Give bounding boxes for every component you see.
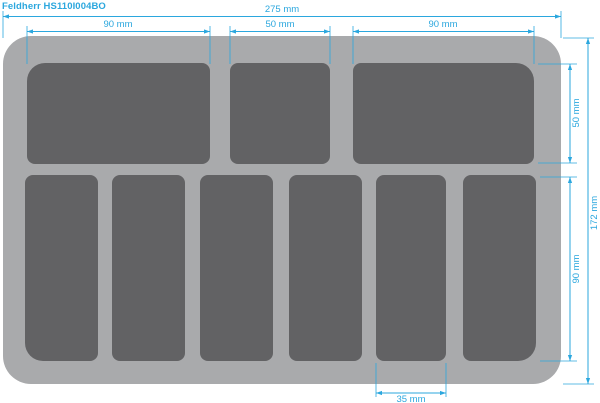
dim-top-total-label: 275 mm [265,4,299,15]
dim-top-left-label: 90 mm [103,19,132,30]
compartment-top-3 [353,63,534,164]
dim-right-total-label: 172 mm [589,196,600,230]
compartment-bottom-1 [25,175,98,361]
compartment-bottom-5 [376,175,446,361]
compartment-bottom-2 [112,175,185,361]
compartment-bottom-3 [200,175,273,361]
dim-right-top-label: 50 mm [571,98,582,127]
foam-tray [3,36,561,384]
compartment-top-1 [27,63,210,164]
product-title: Feldherr HS110I004BO [2,1,106,12]
dim-top-middle-label: 50 mm [265,19,294,30]
dim-right-bottom-label: 90 mm [571,254,582,283]
compartment-top-2 [230,63,330,164]
foam-tray-diagram: Feldherr HS110I004BO 275 mm90 mm50 mm90 … [0,0,600,403]
dim-top-right-label: 90 mm [428,19,457,30]
compartment-bottom-4 [289,175,362,361]
dim-bottom-slot-label: 35 mm [396,394,425,403]
compartment-bottom-6 [463,175,536,361]
